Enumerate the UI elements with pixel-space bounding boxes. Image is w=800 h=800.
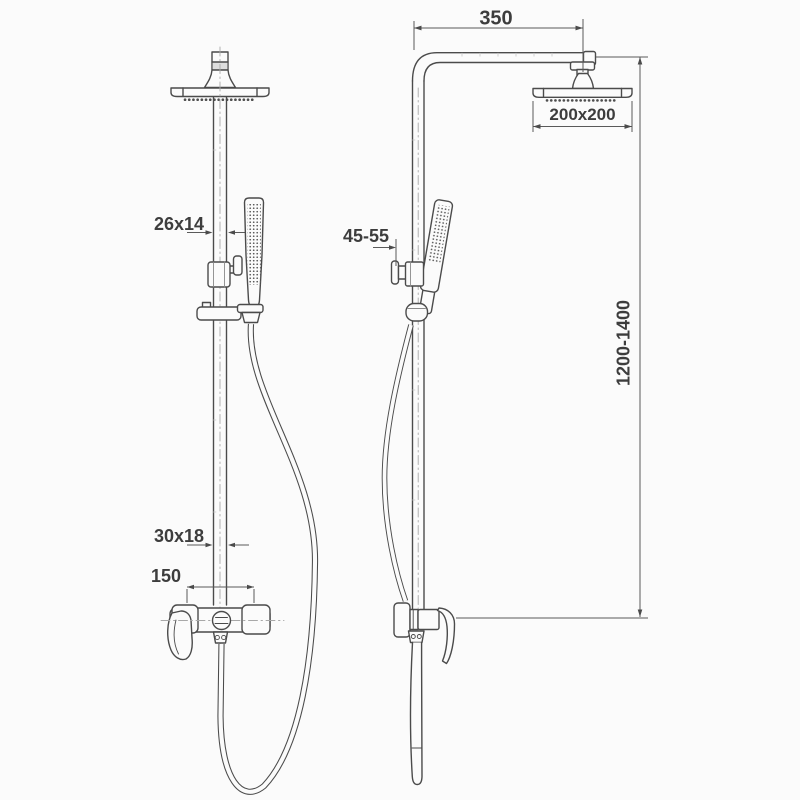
shower-column-technical-drawing: 26x14 30x18: [0, 0, 800, 800]
drawing-canvas: 26x14 30x18: [0, 0, 800, 800]
side-collar-ring: [406, 304, 428, 322]
head-size-label: 200x200: [549, 105, 615, 124]
drawing-background: [0, 0, 800, 800]
upper-pipe-profile-label: 26x14: [154, 214, 204, 234]
front-handset-holder: [238, 305, 264, 313]
side-wall-plate: [394, 603, 410, 637]
inlet-spacing-label: 150: [151, 566, 181, 586]
front-right-escutcheon: [242, 605, 270, 634]
front-diverter-knob: [213, 612, 231, 630]
lower-pipe-profile-label: 30x18: [154, 526, 204, 546]
arm-reach-label: 350: [479, 8, 512, 30]
side-slider-knob: [392, 261, 399, 284]
side-mixer-body: [418, 610, 439, 630]
front-mixer-handle: [168, 611, 193, 660]
column-height-label: 1200-1400: [614, 300, 634, 386]
front-hand-shower-spray-face: [247, 204, 261, 285]
front-hand-shower: [245, 198, 264, 308]
holder-range-label: 45-55: [343, 226, 389, 246]
side-hanging-handset: [411, 643, 422, 785]
